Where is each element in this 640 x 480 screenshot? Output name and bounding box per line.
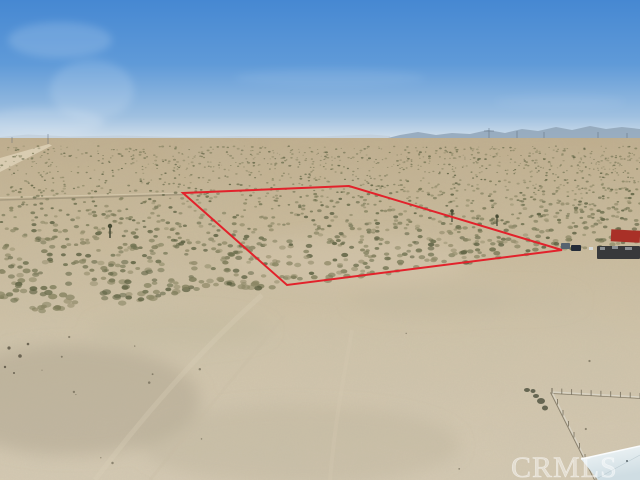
scrub-dot [402,161,405,163]
scrub-dot [73,188,75,189]
scrub-dot [206,279,214,284]
scrub-dot [92,211,97,214]
scrub-dot [152,278,158,281]
scrub-dot [232,216,236,219]
scrub-dot [459,179,462,181]
scrub-dot [582,177,585,179]
scrub-dot [625,181,628,183]
scrub-dot [426,147,428,148]
scrub-dot [428,155,431,157]
scrub-dot [557,219,561,222]
scrub-dot [63,299,71,304]
scrub-dot [102,155,103,156]
scrub-dot [613,180,615,181]
scrub-dot [627,177,629,178]
scrub-dot [615,192,617,194]
scrub-dot [239,251,243,254]
scrub-dot [116,149,117,150]
scrub-dot [579,170,581,171]
scrub-dot [436,238,441,241]
scrub-dot [252,162,255,164]
scrub-dot [369,176,371,177]
scrub-dot [283,173,285,174]
scrub-dot [229,155,232,157]
scrub-dot [124,280,131,285]
scrub-dot [301,184,303,185]
scrub-dot [605,148,607,149]
scrub-dot [8,256,13,259]
scrub-dot [174,245,179,248]
scrub-dot [428,217,432,219]
scrub-dot [432,171,434,172]
scrub-dot [142,290,148,294]
scrub-dot [476,184,479,186]
ground-speck [585,428,587,430]
scrub-dot [384,241,390,244]
scrub-dot [374,219,378,221]
scrub-dot [607,187,610,189]
scrub-dot [393,146,395,147]
scrub-dot [439,148,442,150]
scrub-dot [602,187,605,189]
scrub-dot [36,163,38,164]
scrub-dot [561,154,564,156]
scrub-dot [221,256,226,259]
scrub-dot [324,156,327,158]
scrub-dot [147,259,153,263]
scrub-dot [441,222,446,225]
scrub-dot [391,166,393,167]
scrub-dot [199,225,204,228]
scrub-dot [233,146,236,148]
scrub-dot [325,206,329,208]
scrub-dot [63,180,65,181]
scrub-dot [129,191,131,192]
scrub-dot [218,177,221,179]
scrub-dot [261,274,267,277]
scrub-dot [85,239,89,241]
scrub-dot [314,196,318,198]
scrub-dot [5,227,9,230]
scrub-dot [450,201,453,203]
scrub-dot [320,201,323,203]
scrub-dot [44,214,48,216]
scrub-dot [148,182,150,183]
scrub-dot [438,220,442,223]
scrub-dot [278,205,281,207]
scrub-dot [75,157,77,158]
scrub-dot [473,162,476,164]
scrub-dot [579,166,580,167]
ground-speck [201,438,203,440]
scrub-dot [115,264,121,268]
scrub-dot [33,196,37,198]
scrub-dot [53,229,59,232]
scrub-dot [88,166,89,167]
scrub-dot [335,171,337,172]
scrub-dot [484,158,487,160]
scrub-dot [112,172,114,173]
scrub-dot [438,173,441,175]
scrub-dot [583,155,584,156]
scrub-dot [290,212,294,214]
scrub-dot [611,172,613,174]
scrub-dot [455,158,456,159]
scrub-dot [172,170,174,171]
scrub-dot [174,147,176,148]
scrub-dot [8,265,14,269]
scrub-dot [110,157,112,158]
scrub-dot [306,244,313,248]
scrub-dot [18,155,21,157]
scrub-dot [565,202,569,205]
scrub-dot [277,153,278,154]
scrub-dot [188,149,190,150]
scrub-dot [463,148,465,149]
scrub-dot [120,269,126,272]
scrub-dot [598,197,602,199]
scrub-dot [247,162,250,164]
scrub-dot [634,219,639,222]
scrub-dot [312,170,314,171]
scrub-dot [186,239,190,242]
scrub-dot [162,184,164,186]
scrub-dot [40,192,43,194]
scrub-dot [431,257,438,261]
scrub-dot [298,183,300,184]
scrub-dot [616,172,618,173]
scrub-dot [321,189,324,191]
scrub-dot [518,212,521,214]
scrub-dot [164,182,166,183]
scrub-dot [546,214,549,216]
scrub-dot [178,242,184,246]
scrub-dot [600,160,603,162]
scrub-dot [526,187,529,189]
scrub-dot [86,209,90,211]
scrub-dot [164,227,169,230]
scrub-dot [389,206,392,208]
scrub-dot [116,254,121,257]
scrub-dot [38,189,41,191]
scrub-dot [204,166,206,167]
scrub-dot [543,168,544,169]
scrub-dot [240,154,242,155]
scrub-dot [239,163,242,165]
scrub-dot [597,168,599,169]
scrub-dot [352,171,354,172]
scrub-dot [241,194,244,196]
scrub-dot [615,157,618,159]
scrub-dot [598,161,600,162]
scrub-dot [481,171,483,172]
scrub-dot [73,260,79,264]
scrub-dot [89,178,91,179]
scrub-dot [470,172,472,173]
scrub-dot [533,148,536,150]
scrub-dot [39,202,43,204]
scrub-dot [118,301,126,306]
scrub-dot [357,227,362,230]
scrub-dot [76,253,82,257]
scrub-dot [629,153,631,154]
scrub-dot [328,273,336,278]
scrub-dot [185,169,187,170]
scrub-dot [94,170,96,171]
scrub-dot [124,249,129,252]
scrub-dot [98,179,100,180]
scrub-dot [621,187,624,189]
scrub-dot [29,277,37,282]
scrub-dot [260,174,262,175]
scrub-dot [535,151,538,153]
scrub-dot [342,191,345,193]
scrub-dot [481,165,483,166]
scrub-dot [259,236,264,239]
scrub-dot [384,257,390,261]
scrub-dot [60,149,61,150]
scrub-dot [40,174,42,175]
scrub-dot [510,150,512,151]
scrub-dot [210,166,212,167]
scrub-dot [270,222,274,225]
scrub-dot [174,148,177,150]
scrub-dot [265,195,267,196]
scrub-dot [198,152,201,154]
scrub-dot [71,171,73,172]
scrub-dot [461,256,466,259]
scrub-dot [199,216,204,219]
scrub-dot [27,159,29,160]
scrub-dot [347,204,351,206]
scrub-dot [606,218,609,220]
scrub-dot [128,151,129,152]
scrub-dot [331,156,333,157]
scrub-dot [513,170,515,171]
scrub-dot [441,260,447,263]
scrub-dot [428,163,430,164]
scrub-dot [192,158,194,159]
scrub-dot [313,178,315,180]
scrub-dot [464,157,465,158]
scrub-dot [454,228,458,230]
scrub-dot [256,153,259,155]
scrub-dot [193,156,195,157]
scrub-dot [462,167,464,168]
scrub-dot [375,230,380,233]
scrub-dot [96,186,99,188]
scrub-dot [505,197,508,199]
scrub-dot [375,247,380,250]
scrub-dot [222,261,228,265]
scrub-dot [243,166,245,167]
scrub-dot [112,220,116,223]
scrub-dot [558,222,562,224]
scrub-dot [47,153,49,154]
scrub-dot [154,160,157,162]
scrub-dot [275,163,276,164]
scrub-dot [618,174,620,175]
scrub-dot [92,200,96,202]
scrub-dot [435,244,440,247]
scrub-dot [559,209,562,211]
scrub-dot [251,282,259,287]
scrub-dot [572,232,577,235]
scrub-dot [358,241,363,244]
scrub-dot [304,216,308,219]
scrub-dot [354,148,355,149]
scrub-dot [360,150,363,152]
scrub-dot [420,166,422,167]
scrub-dot [202,243,207,246]
scrub-dot [120,265,126,269]
scrub-dot [210,146,212,147]
scrub-dot [549,229,554,232]
scrub-dot [404,227,408,229]
scrub-dot [598,164,600,165]
scrub-dot [287,146,288,147]
scrub-dot [520,163,522,164]
scrub-dot [310,167,312,168]
scrub-dot [629,155,630,156]
scrub-dot [108,272,114,276]
scrub-dot [396,191,399,193]
scrub-dot [85,254,91,258]
scrub-dot [304,152,306,153]
scrub-dot [506,221,510,223]
scrub-dot [401,189,403,190]
scrub-dot [209,161,211,163]
scrub-dot [636,160,639,162]
scrub-dot [512,150,515,152]
scrub-dot [533,198,537,200]
scrub-dot [253,166,255,167]
scrub-dot [102,171,104,172]
scrub-dot [258,164,261,166]
scrub-dot [544,180,546,181]
scrub-dot [253,228,257,231]
scrub-dot [164,173,166,174]
scrub-dot [457,149,459,150]
scrub-dot [600,217,603,219]
scrub-dot [614,203,618,206]
scrub-dot [435,150,438,152]
scrub-dot [495,153,497,154]
scrub-dot [64,193,67,195]
scrub-dot [385,158,388,160]
scrub-dot [403,190,406,192]
scrub-dot [4,244,9,247]
scrub-dot [326,196,328,198]
scrub-dot [277,223,281,225]
scrub-dot [574,211,579,214]
scrub-dot [225,268,230,271]
scrub-dot [448,244,453,247]
scrub-dot [557,199,560,201]
scrub-dot [539,187,542,189]
scrub-dot [403,210,407,212]
scrub-dot [28,182,30,183]
scrub-dot [17,265,23,268]
scrub-dot [63,156,65,158]
scrub-dot [235,173,238,175]
scrub-dot [604,169,606,170]
scrub-dot [481,254,486,257]
scrub-dot [188,157,190,158]
scrub-dot [445,151,447,152]
scrub-dot [248,174,251,176]
scrub-dot [634,147,637,149]
scrub-dot [66,214,69,216]
scrub-dot [77,186,80,188]
scrub-dot [32,223,37,226]
scrub-dot [85,152,88,154]
scrub-dot [31,166,33,167]
scrub-dot [191,266,198,270]
scrub-dot [301,213,304,215]
scrub-dot [562,172,564,174]
scrub-dot [221,165,222,166]
scrub-dot [295,201,299,203]
scrub-dot [6,292,13,296]
scrub-dot [189,277,197,282]
scrub-dot [416,190,419,192]
scrub-dot [406,219,410,222]
scrub-dot [318,233,323,236]
scrub-dot [133,246,139,250]
scrub-dot [587,215,592,218]
scrub-dot [147,256,153,259]
scrub-dot [595,238,600,241]
scrub-dot [406,156,408,157]
scrub-dot [139,154,142,156]
scrub-dot [475,240,479,243]
scrub-dot [474,243,480,247]
scrub-dot [185,249,189,252]
scrub-dot [102,289,111,295]
scrub-dot [415,202,418,204]
scrub-dot [49,245,55,249]
scrub-dot [405,232,410,235]
scrub-dot [271,216,275,218]
scrub-dot [591,217,594,219]
scrub-dot [555,145,557,146]
scrub-dot [38,172,40,173]
scrub-dot [566,179,568,180]
scrub-dot [617,201,620,203]
scrub-dot [148,198,151,200]
scrub-dot [567,195,570,197]
scrub-dot [156,220,160,223]
scrub-dot [621,210,624,212]
scrub-dot [256,242,262,245]
scrub-dot [320,195,323,197]
scrub-dot [318,179,320,181]
scrub-dot [174,239,178,242]
scrub-dot [131,261,136,264]
scrub-dot [162,159,164,160]
scrub-dot [428,182,430,184]
scrub-dot [316,154,317,155]
scrub-dot [281,175,283,177]
scrub-dot [379,243,383,245]
scrub-dot [632,177,634,178]
scrub-dot [68,155,71,157]
scrub-dot [471,154,473,155]
scrub-dot [410,164,412,165]
scrub-dot [146,295,154,300]
scrub-dot [43,151,45,152]
